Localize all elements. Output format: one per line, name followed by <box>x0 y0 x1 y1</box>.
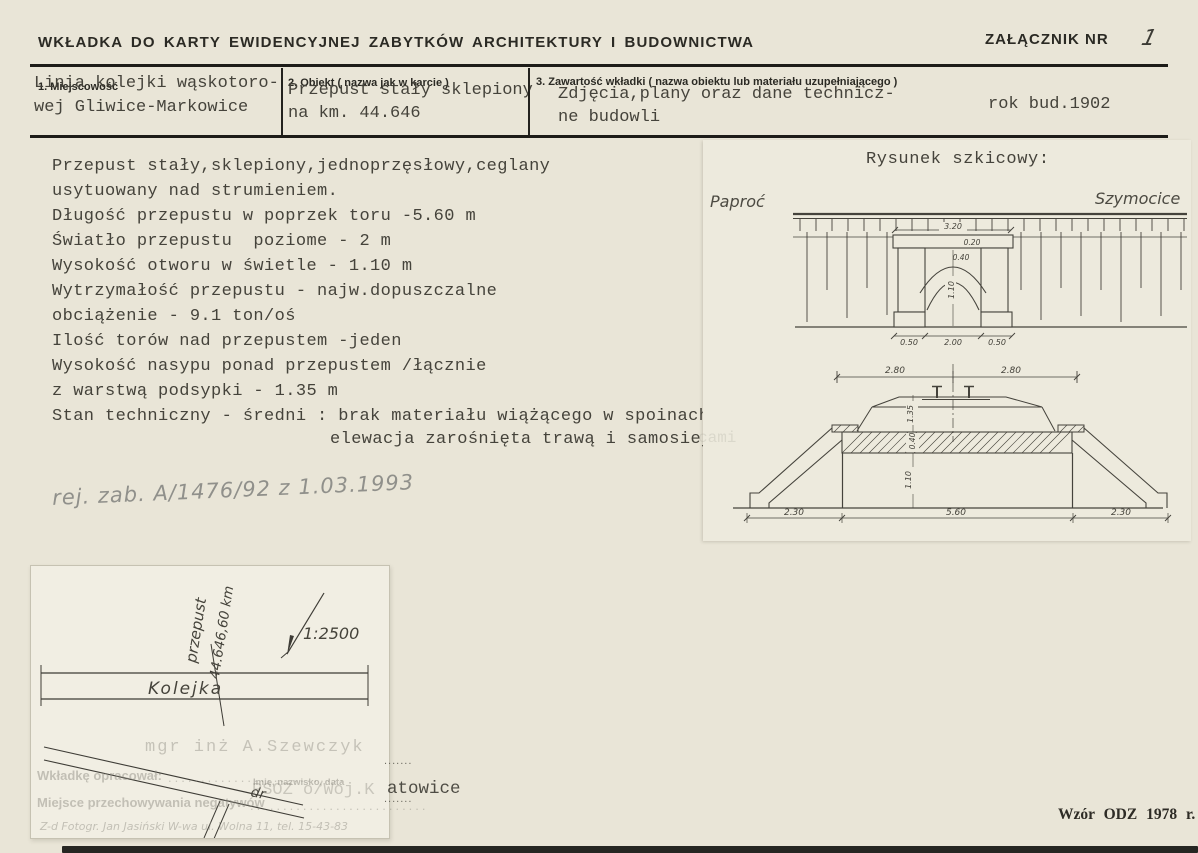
description-line: usytuowany nad strumieniem. <box>52 182 338 201</box>
bleedthrough-leader-dots-2: ........................... <box>250 798 429 813</box>
scan-edge-strip <box>62 846 1198 853</box>
attachment-number-handwritten: 1 <box>1139 26 1159 51</box>
description-line: obciążenie - 9.1 ton/oś <box>52 307 296 326</box>
field1-value-line2: wej Gliwice-Markowice <box>34 98 248 117</box>
section-dimension-labels: 2.80 2.80 1.35 0.40 1.10 2.30 5.60 2.30 <box>784 366 1131 518</box>
description-line: elewacja zarośnięta trawą i samosiej <box>330 430 712 449</box>
description-line: Stan techniczny - średni : brak materiał… <box>52 407 709 426</box>
dim-arch-ring: 0.40 <box>953 253 970 262</box>
form-template-note: Wzór ODZ 1978 r. <box>1058 806 1195 824</box>
form-divider-2 <box>528 68 530 135</box>
description-line: Wysokość otworu w świetle - 1.10 m <box>52 257 412 276</box>
dim-top-width: 3.20 <box>944 222 962 231</box>
dim-cap-height: 0.20 <box>964 238 981 247</box>
dim-pier-left: 0.50 <box>900 338 918 347</box>
description-line: Wysokość nasypu ponad przepustem /łączni… <box>52 357 487 376</box>
header-rule-top <box>30 64 1168 67</box>
field3-value-line2: ne budowli <box>558 108 660 127</box>
field1-value-line1: Linia kolejki wąskotoro- <box>34 74 279 93</box>
dim-pier-right: 0.50 <box>988 338 1006 347</box>
bleedthrough-prepared-label: Wkładkę opracował: <box>37 768 162 783</box>
dim-span: 2.00 <box>944 338 962 347</box>
header-rule-bottom <box>30 135 1168 138</box>
field3-year: rok bud.1902 <box>988 95 1110 114</box>
culvert-label: przepust <box>182 595 210 665</box>
form-divider-1 <box>281 68 283 135</box>
description-line: Długość przepustu w poprzek toru -5.60 m <box>52 207 476 226</box>
elevation-drawing <box>793 214 1187 339</box>
dim-length: 5.60 <box>946 508 966 518</box>
attachment-label: ZAŁĄCZNIK NR <box>985 31 1109 48</box>
dim-left-half: 2.80 <box>885 366 905 376</box>
dotted-line-upper: ....... <box>384 755 412 767</box>
km-label: 44.646,60 km <box>207 585 238 680</box>
bleedthrough-negatives-label: Miejsce przechowywania negatywów <box>37 795 265 810</box>
description-line: Wytrzymałość przepustu - najw.dopuszczal… <box>52 282 497 301</box>
description-line: z warstwą podsypki - 1.35 m <box>52 382 338 401</box>
description-line: Ilość torów nad przepustem -jeden <box>52 332 402 351</box>
description-line: Światło przepustu poziome - 2 m <box>52 232 391 251</box>
field2-value-line1: Przepust stały sklepiony <box>288 81 533 100</box>
dim-clear-height: 1.10 <box>947 281 956 299</box>
dim-ring: 0.40 <box>908 432 917 449</box>
scanned-card-page: WKŁADKA DO KARTY EWIDENCYJNEJ ZABYTKÓW A… <box>0 0 1198 853</box>
dim-right-half: 2.80 <box>1001 366 1021 376</box>
railway-label: Kolejka <box>148 679 223 699</box>
bleedthrough-photo-lab: Z-d Fotogr. Jan Jasiński W-wa ul. Wolna … <box>40 820 348 833</box>
bleedthrough-author: mgr inż A.Szewczyk <box>145 738 365 757</box>
cross-section-drawing <box>733 364 1171 523</box>
description-line: Przepust stały,sklepiony,jednoprzęsłowy,… <box>52 157 550 176</box>
sketch-sheet: Rysunek szkicowy: Paproć Szymocice <box>703 140 1191 541</box>
ghost-text-fragment: cami <box>698 429 736 447</box>
dim-fill-height: 1.35 <box>906 405 915 423</box>
dim-section-clear-height: 1.10 <box>904 471 913 489</box>
attachment-label-text: ZAŁĄCZNIK NR <box>985 31 1109 48</box>
dim-wing-left: 2.30 <box>784 508 804 518</box>
field3-value-line1: Zdjęcia,plany oraz dane technicz- <box>558 85 895 104</box>
page-title: WKŁADKA DO KARTY EWIDENCYJNEJ ZABYTKÓW A… <box>38 34 754 51</box>
technical-drawing-svg: 3.20 0.20 0.40 1.10 0.50 2.00 0.50 <box>703 140 1191 541</box>
scale-label: 1:2500 <box>303 624 359 643</box>
dim-wing-right: 2.30 <box>1111 508 1131 518</box>
handwritten-register-note: rej. zab. A/1476/92 z 1.03.1993 <box>52 470 415 510</box>
field2-value-line2: na km. 44.646 <box>288 104 421 123</box>
